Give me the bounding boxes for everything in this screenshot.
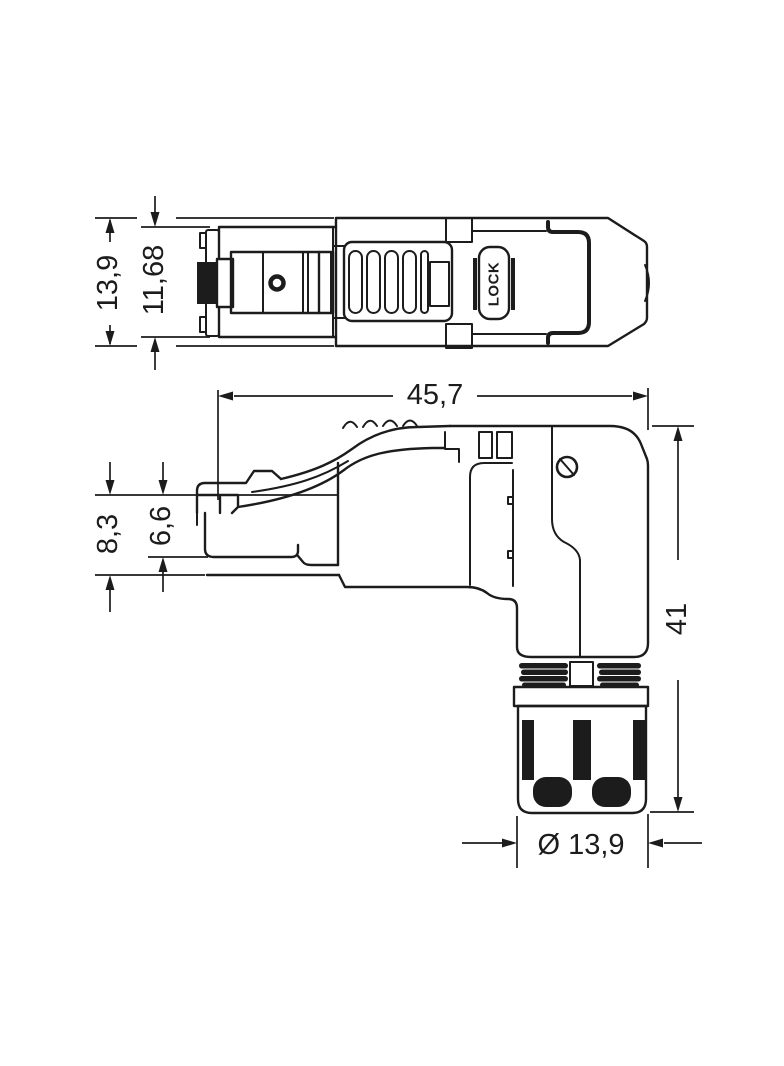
arrow-up-icon <box>159 557 168 572</box>
connector-body <box>339 426 648 657</box>
boot-top-tab <box>497 432 512 458</box>
side-view <box>197 421 648 814</box>
slider-notch-bottom <box>446 324 472 348</box>
latch-lever-top <box>281 426 450 479</box>
arrow-up-icon <box>151 337 160 352</box>
arrow-up-icon <box>106 575 115 590</box>
dim-cable-gland-diameter: Ø 13,9 <box>462 814 702 868</box>
arrow-down-icon <box>674 797 683 812</box>
dim-plug-inner-height: 6,6 <box>145 462 208 592</box>
dim-overall-length: 45,7 <box>218 379 648 500</box>
shield-finger-top <box>200 233 206 248</box>
cable-gland <box>514 631 648 813</box>
lock-rail-right <box>511 258 515 310</box>
latch-rest-step <box>445 432 459 462</box>
rivet-pin <box>271 277 284 290</box>
arrow-down-icon <box>159 480 168 495</box>
lock-label: LOCK <box>486 262 503 307</box>
arrow-up-icon <box>106 218 115 233</box>
latch-release-tab <box>479 432 492 458</box>
gland-nut <box>514 687 648 706</box>
slider-notch-top <box>446 218 472 242</box>
arrow-left-icon <box>648 839 663 848</box>
dim-overall-height: 41 <box>650 426 694 812</box>
shield-finger-bottom <box>200 317 206 332</box>
technical-drawing: LOCK 13,9 11,68 <box>0 0 784 1066</box>
arrow-down-icon <box>106 331 115 346</box>
retainer-bracket <box>548 222 589 343</box>
dim-label-overall-height: 41 <box>661 603 693 635</box>
strain-relief-ribs <box>349 251 449 313</box>
body-front-face <box>508 470 513 586</box>
nose-outer-lip <box>298 556 338 565</box>
arrow-down-icon <box>151 212 160 227</box>
dim-label-plug-front-height: 8,3 <box>92 514 124 554</box>
arrow-down-icon <box>106 480 115 495</box>
arrow-right-icon <box>633 392 648 401</box>
lock-slider: LOCK <box>473 247 515 319</box>
dim-plug-front-height: 8,3 <box>92 462 338 612</box>
dim-label-top-inner-height: 11,68 <box>138 245 170 315</box>
rj45-plug-nose <box>197 421 450 576</box>
lock-rail-left <box>473 258 477 310</box>
arrow-right-icon <box>502 839 517 848</box>
technical-drawing-page: LOCK 13,9 11,68 <box>0 0 784 1066</box>
fastening-screw <box>557 457 577 477</box>
boot-front-line <box>470 463 512 585</box>
arrow-left-icon <box>218 392 233 401</box>
arrow-up-icon <box>674 426 683 441</box>
thread-key <box>570 662 593 686</box>
grip-slots <box>522 720 645 807</box>
nose-inner-bottom <box>205 513 298 557</box>
dim-label-cable-gland-diameter: Ø 13,9 <box>537 829 624 861</box>
dim-label-overall-length: 45,7 <box>407 379 463 411</box>
dim-label-top-overall-height: 13,9 <box>92 255 124 311</box>
contact-block <box>197 262 218 304</box>
top-view: LOCK <box>197 218 649 348</box>
dim-label-plug-inner-height: 6,6 <box>145 506 177 546</box>
